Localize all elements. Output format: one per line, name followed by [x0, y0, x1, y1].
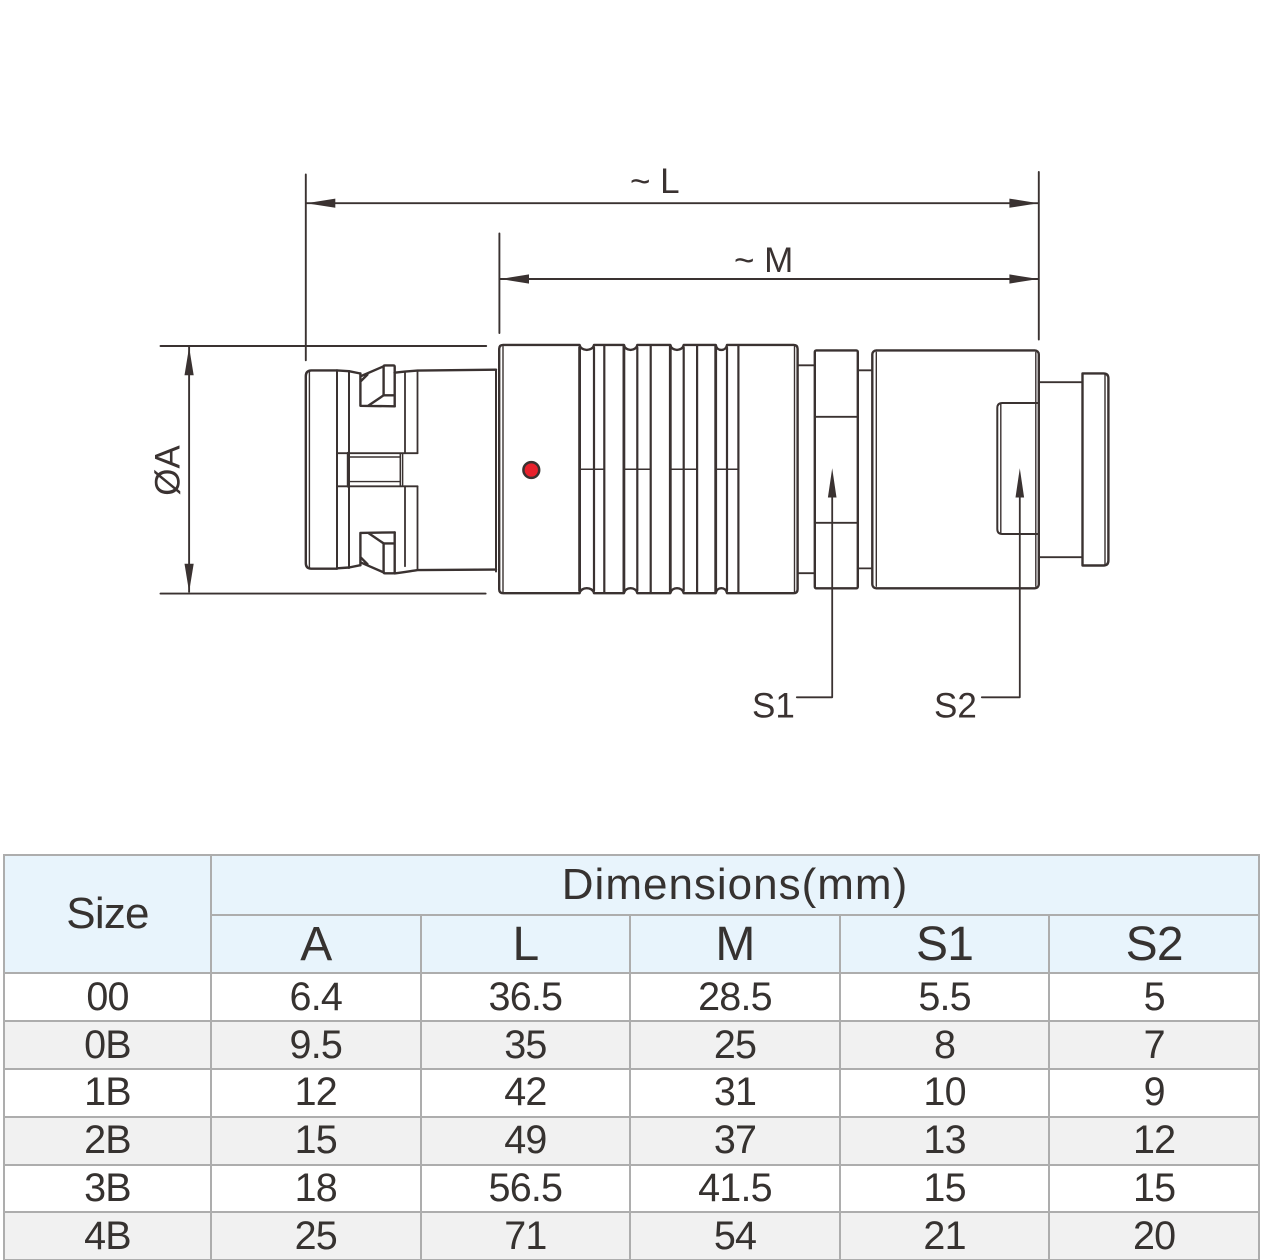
svg-text:~ M: ~ M	[734, 241, 793, 280]
svg-text:S1: S1	[752, 687, 795, 726]
svg-text:ØA: ØA	[149, 445, 188, 496]
svg-text:S2: S2	[934, 687, 977, 726]
svg-text:~ L: ~ L	[630, 162, 680, 201]
